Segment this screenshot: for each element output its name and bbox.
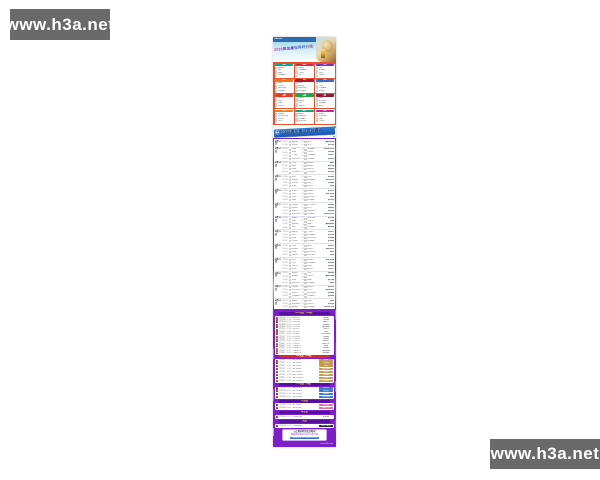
match-time: 09:00 bbox=[282, 199, 288, 201]
away-team-name: 突尼斯 bbox=[307, 259, 313, 261]
home-team: 阿根廷 bbox=[289, 286, 301, 288]
poster-brand-logo: h3a.net bbox=[275, 38, 283, 41]
home-team: 比利时 bbox=[289, 182, 301, 184]
match-time: 02:00 bbox=[282, 245, 288, 247]
away-team: 附加赛1 bbox=[304, 295, 316, 297]
away-team: 乌拉圭 bbox=[304, 275, 316, 277]
away-team-name: 附加赛A bbox=[307, 154, 315, 156]
away-team-name: 佛得角 bbox=[307, 190, 313, 192]
home-team-name: 英格兰 bbox=[292, 217, 298, 219]
home-team-name: 德国 bbox=[292, 251, 296, 253]
team-row: 厄瓜多尔 bbox=[295, 90, 314, 93]
match-pairing: 胜1 vs 胜2 bbox=[292, 404, 318, 406]
match-venue: 温哥华 bbox=[316, 154, 334, 156]
match-row: 09:00加拿大VS瑞士多伦多 bbox=[282, 143, 334, 146]
knockout-zone: 1/16决赛（32强） 16月29日03:00A1 vs C2洛杉矶26月29日… bbox=[273, 310, 336, 447]
away-team: 附加赛D bbox=[304, 306, 316, 308]
match-time: 07:00 bbox=[286, 368, 292, 370]
away-team-name: 附加赛B bbox=[307, 179, 315, 181]
date-label: 6月15日 bbox=[275, 176, 283, 188]
away-team: 附加赛1 bbox=[304, 213, 316, 215]
third-place-table: 17月19日03:00半决赛负者迈阿密 bbox=[275, 415, 334, 420]
away-team-name: 附加赛D bbox=[307, 226, 315, 228]
match-row: 09:00埃及VS新西兰温哥华 bbox=[282, 267, 334, 270]
match-venue: 西雅图 bbox=[319, 374, 333, 376]
section-header-r32: 1/16决赛（32强） bbox=[279, 312, 330, 315]
match-time: 05:00 bbox=[282, 303, 288, 305]
match-time: 07:00 bbox=[282, 237, 288, 239]
schedule-banner-title: 2026美加墨世界杯赛程 bbox=[281, 129, 322, 136]
match-venue: 洛杉矶 bbox=[316, 151, 334, 153]
home-team-name: 巴西 bbox=[292, 245, 296, 247]
match-time: 05:00 bbox=[282, 276, 288, 278]
away-team-name: 苏格兰 bbox=[307, 248, 313, 250]
home-team-name: 荷兰 bbox=[292, 176, 296, 178]
match-time: 07:00 bbox=[282, 279, 288, 281]
match-venue: 纽约 bbox=[316, 282, 334, 284]
matches-column: 06:00墨西哥VS南非墨西哥城09:00加拿大VS瑞士多伦多 bbox=[282, 140, 334, 146]
match-venue: 洛杉矶 bbox=[316, 265, 334, 267]
away-team-name: 克罗地亚 bbox=[307, 217, 315, 219]
home-team: 加纳 bbox=[289, 220, 301, 222]
away-team: 乌兹别克 bbox=[304, 210, 316, 212]
away-team-name: 附加赛A bbox=[307, 234, 315, 236]
section-header-r16: 1/8决赛（16强） bbox=[279, 355, 330, 358]
match-pairing: 半决赛负者 bbox=[292, 416, 318, 418]
section-header-third: 季军赛 bbox=[279, 411, 330, 414]
away-team-name: 日本 bbox=[307, 176, 311, 178]
date-label: 6月19日 bbox=[275, 231, 283, 243]
match-time: 02:00 bbox=[282, 190, 288, 192]
section-header-qf: 1/4决赛（8强） bbox=[279, 383, 330, 386]
match-venue: 多伦多 bbox=[316, 144, 334, 146]
home-team: 阿根廷 bbox=[289, 204, 301, 206]
match-venue: 西雅图 bbox=[316, 292, 334, 294]
home-team-name: 荷兰 bbox=[292, 259, 296, 261]
poster-watermark: www.h3a.net bbox=[320, 443, 333, 446]
team-name: 挪威 bbox=[319, 105, 323, 107]
date-label: 6月21日 bbox=[275, 258, 283, 270]
team-row: 苏格兰 bbox=[316, 74, 335, 77]
match-row: 09:00挪威VS附加赛2多伦多 bbox=[282, 199, 334, 202]
match-venue: 迈阿密 bbox=[319, 416, 333, 418]
date-label: 6月18日 bbox=[275, 217, 283, 229]
team-row: 新西兰 bbox=[275, 105, 294, 108]
match-date: 7月20日 bbox=[279, 425, 286, 427]
away-team: 苏格兰 bbox=[304, 165, 316, 167]
match-time: 05:00 bbox=[282, 289, 288, 291]
away-team-name: 附加赛C bbox=[307, 158, 315, 160]
match-time: 07:00 bbox=[282, 182, 288, 184]
away-team: 巴拿马 bbox=[304, 303, 316, 305]
match-date: 7月11日 bbox=[279, 396, 286, 398]
home-team: 巴拉圭 bbox=[289, 240, 301, 242]
match-venue: 洛杉矶 bbox=[316, 210, 334, 212]
away-team: 附加赛C bbox=[304, 240, 316, 242]
home-team-name: 伊朗 bbox=[292, 185, 296, 187]
match-venue: 亚特兰大 bbox=[316, 248, 334, 250]
away-team-name: 约旦 bbox=[307, 207, 311, 209]
home-team: 葡萄牙 bbox=[289, 210, 301, 212]
home-team-name: 比利时 bbox=[292, 182, 298, 184]
date-label: 6月14日 bbox=[275, 162, 283, 174]
r32-table: 16月29日03:00A1 vs C2洛杉矶26月29日07:00C1 vs F… bbox=[275, 316, 334, 355]
match-time: 07:00 bbox=[282, 210, 288, 212]
home-team-name: 科特迪瓦 bbox=[292, 171, 300, 173]
away-team: 克罗地亚 bbox=[304, 217, 316, 219]
away-team-name: 乌兹别克 bbox=[307, 210, 315, 212]
home-team: 卡塔尔 bbox=[289, 154, 301, 156]
date-label: 6月23日 bbox=[275, 286, 283, 298]
match-pairing: 胜3 vs 胜4 bbox=[292, 407, 318, 409]
home-team: 澳大利亚 bbox=[289, 158, 301, 160]
match-time: 05:00 bbox=[282, 152, 288, 154]
away-team: 摩洛哥 bbox=[304, 162, 316, 164]
away-team-name: 阿尔及利亚 bbox=[307, 204, 316, 206]
match-time: 09:00 bbox=[282, 295, 288, 297]
home-team: 法国 bbox=[289, 279, 301, 281]
matches-column: 02:00西班牙VS沙特休斯敦05:00佛得角VS乌拉圭墨西哥城07:00法国V… bbox=[282, 272, 334, 284]
home-team-name: 瑞士 bbox=[292, 234, 296, 236]
date-group: 6月17日02:00阿根廷VS阿尔及利亚达拉斯05:00奥地利VS约旦休斯敦07… bbox=[275, 203, 334, 217]
match-time: 07:00 bbox=[282, 223, 288, 225]
team-name: 约旦 bbox=[278, 120, 282, 122]
away-team: 附加赛D bbox=[304, 148, 316, 150]
match-time: 02:00 bbox=[282, 286, 288, 288]
home-team-name: 比利时 bbox=[292, 265, 298, 267]
date-group: 6月16日02:00西班牙VS佛得角迈阿密05:00沙特VS乌拉圭堪萨斯城07:… bbox=[275, 189, 334, 203]
match-time: 05:00 bbox=[282, 248, 288, 250]
match-row: 09:00澳大利亚VS附加赛C旧金山 bbox=[282, 157, 334, 160]
match-venue: 旧金山 bbox=[316, 240, 334, 242]
home-team: 荷兰 bbox=[289, 176, 301, 178]
note-line: 更多赛程请访问 www.h3a.net bbox=[290, 437, 319, 439]
team-row: 哥伦比亚 bbox=[295, 120, 314, 123]
home-team: 比利时 bbox=[289, 265, 301, 267]
away-team-name: 附加赛B bbox=[307, 262, 315, 264]
away-team: 哥伦比亚 bbox=[304, 292, 316, 294]
date-label: 6月12日 bbox=[275, 140, 283, 146]
group-card: I组法国塞内加尔附加赛2挪威 bbox=[315, 94, 334, 108]
matches-column: 02:00荷兰VS日本达拉斯05:00突尼斯VS附加赛B亚特兰大07:00比利时… bbox=[282, 176, 334, 188]
home-team: 哥伦比亚 bbox=[289, 213, 301, 215]
match-venue: 费城 bbox=[316, 220, 334, 222]
away-team: 巴拿马 bbox=[304, 220, 316, 222]
away-team: 卡塔尔 bbox=[304, 231, 316, 233]
home-team: 摩洛哥 bbox=[289, 248, 301, 250]
home-team: 墨西哥 bbox=[289, 306, 301, 308]
match-venue: 多伦多 bbox=[316, 234, 334, 236]
team-row: 乌拉圭 bbox=[295, 105, 314, 108]
match-row: 09:00乌兹别克VS附加赛1旧金山 bbox=[282, 295, 334, 298]
match-venue: 达拉斯 bbox=[316, 176, 334, 178]
away-team: 约旦 bbox=[304, 289, 316, 291]
match-date: 7月7日 bbox=[279, 371, 286, 373]
away-team: 奥地利 bbox=[304, 286, 316, 288]
match-time: 05:00 bbox=[282, 220, 288, 222]
match-venue: 多伦多 bbox=[316, 199, 334, 201]
group-card: B组加拿大附加赛A卡塔尔瑞士 bbox=[295, 64, 314, 78]
schedule-banner-ribbon: ⚽ 2026美加墨世界杯赛程 bbox=[274, 126, 335, 137]
match-venue: 达拉斯 bbox=[319, 371, 333, 373]
away-team: 海地 bbox=[304, 245, 316, 247]
home-team-name: 加纳 bbox=[292, 220, 296, 222]
match-time: 03:00 bbox=[286, 365, 292, 367]
team-name: 瑞士 bbox=[298, 74, 302, 76]
away-team-name: 附加赛2 bbox=[307, 282, 314, 284]
group-card: D组美国巴拉圭澳大利亚附加赛C bbox=[275, 79, 294, 93]
home-team-name: 阿根廷 bbox=[292, 204, 298, 206]
team-name: 附加赛C bbox=[278, 90, 286, 92]
away-team: 巴拉圭 bbox=[304, 151, 316, 153]
home-team: 瑞士 bbox=[289, 234, 301, 236]
away-team-name: 巴拿马 bbox=[307, 220, 313, 222]
home-team: 法国 bbox=[289, 196, 301, 198]
match-time: 09:00 bbox=[282, 240, 288, 242]
group-card: C组巴西摩洛哥海地苏格兰 bbox=[315, 64, 334, 78]
section-header-final: 决赛 bbox=[279, 420, 330, 423]
match-time: 03:00 bbox=[286, 371, 292, 373]
match-pairing: 胜G vs 胜H bbox=[292, 396, 318, 398]
match-venue: 温哥华 bbox=[316, 231, 334, 233]
group-card: K组葡萄牙乌兹别克附加赛1哥伦比亚 bbox=[295, 109, 314, 123]
away-team: 加纳 bbox=[304, 300, 316, 302]
match-date: 7月19日 bbox=[279, 416, 286, 418]
team-name: 新西兰 bbox=[278, 105, 284, 107]
away-team: 科特迪瓦 bbox=[304, 251, 316, 253]
match-venue: 达拉斯 bbox=[316, 171, 334, 173]
matches-column: 02:00英格兰VS克罗地亚波士顿05:00加纳VS巴拿马费城07:00墨西哥V… bbox=[282, 217, 334, 229]
match-time: 02:00 bbox=[282, 272, 288, 274]
home-team: 巴西 bbox=[289, 162, 301, 164]
match-time: 07:00 bbox=[282, 265, 288, 267]
home-team-name: 巴拉圭 bbox=[292, 240, 298, 242]
match-venue: 费城 bbox=[316, 254, 334, 256]
date-label: 6月16日 bbox=[275, 189, 283, 201]
home-team-name: 卡塔尔 bbox=[292, 154, 298, 156]
team-name: 附加赛D bbox=[278, 74, 286, 76]
home-team-name: 日本 bbox=[292, 262, 296, 264]
home-team: 葡萄牙 bbox=[289, 292, 301, 294]
match-pairing: 胜7 vs 胜8 bbox=[292, 368, 318, 370]
team-row: 瑞士 bbox=[295, 74, 314, 77]
match-date: 7月6日 bbox=[279, 368, 286, 370]
home-team-name: 法国 bbox=[292, 279, 296, 281]
match-venue: 亚特兰大 bbox=[316, 179, 334, 181]
team-row: 巴拿马 bbox=[316, 120, 335, 123]
home-team: 阿尔及利亚 bbox=[289, 289, 301, 291]
match-pairing: 胜9 vs 胜10 bbox=[292, 371, 318, 373]
match-venue: 瓜达拉哈拉 bbox=[316, 306, 334, 308]
away-team: 附加赛A bbox=[304, 234, 316, 236]
match-pairing: 胜11 vs 胜12 bbox=[292, 374, 318, 376]
home-team: 巴西 bbox=[289, 245, 301, 247]
match-row: 09:00南非VS附加赛D蒙特雷 bbox=[282, 226, 334, 229]
match-time: 05:00 bbox=[282, 165, 288, 167]
away-team: 附加赛B bbox=[304, 179, 316, 181]
match-time: 03:00 bbox=[286, 359, 292, 361]
match-venue: 达拉斯 bbox=[316, 262, 334, 264]
home-team-name: 葡萄牙 bbox=[292, 292, 298, 294]
match-row: 09:00塞内加尔VS附加赛2纽约 bbox=[282, 281, 334, 284]
match-venue: 迈阿密 bbox=[319, 380, 333, 382]
matches-column: 02:00巴西VS摩洛哥纽约05:00海地VS苏格兰波士顿07:00德国VS库拉… bbox=[282, 162, 334, 174]
date-group: 6月22日02:00西班牙VS沙特休斯敦05:00佛得角VS乌拉圭墨西哥城07:… bbox=[275, 272, 334, 286]
home-team: 荷兰 bbox=[289, 259, 301, 261]
group-stage-table-border: 6月12日06:00墨西哥VS南非墨西哥城09:00加拿大VS瑞士多伦多6月13… bbox=[273, 138, 336, 310]
away-team-name: 附加赛D bbox=[307, 306, 315, 308]
match-date: 7月8日 bbox=[279, 377, 286, 379]
home-team: 突尼斯 bbox=[289, 179, 301, 181]
knockout-row: 17月19日03:00半决赛负者迈阿密 bbox=[276, 415, 333, 419]
team-row: 约旦 bbox=[275, 120, 294, 123]
matches-column: 02:00荷兰VS突尼斯堪萨斯城05:00日本VS附加赛B达拉斯07:00比利时… bbox=[282, 258, 334, 270]
home-team: 德国 bbox=[289, 251, 301, 253]
away-team: 埃及 bbox=[304, 182, 316, 184]
match-time: 05:00 bbox=[282, 262, 288, 264]
match-time: 02:00 bbox=[282, 162, 288, 164]
match-venue: 瓜达拉哈拉 bbox=[316, 213, 334, 215]
home-team: 日本 bbox=[289, 262, 301, 264]
away-team: 澳大利亚 bbox=[304, 237, 316, 239]
match-pairing: 半决赛胜者 bbox=[292, 425, 318, 427]
date-label: 6月22日 bbox=[275, 272, 283, 284]
match-time: 07:00 bbox=[286, 380, 292, 382]
group-card: F组荷兰日本附加赛B突尼斯 bbox=[315, 79, 334, 93]
home-team-name: 巴西 bbox=[292, 162, 296, 164]
away-team-name: 澳大利亚 bbox=[307, 237, 315, 239]
home-team: 埃及 bbox=[289, 268, 301, 270]
final-table: 17月20日03:00半决赛胜者纽约大都会 bbox=[275, 424, 334, 429]
home-team: 佛得角 bbox=[289, 275, 301, 277]
home-team: 加拿大 bbox=[289, 144, 301, 146]
team-name: 乌拉圭 bbox=[298, 105, 304, 107]
match-venue: 迈阿密 bbox=[316, 245, 334, 247]
match-venue: 堪萨斯城 bbox=[319, 396, 333, 398]
match-time: 07:00 bbox=[282, 306, 288, 308]
match-venue: 迈阿密 bbox=[319, 393, 333, 395]
away-team-name: 沙特 bbox=[307, 272, 311, 274]
match-time: 05:00 bbox=[282, 179, 288, 181]
away-team: 塞内加尔 bbox=[304, 196, 316, 198]
match-row: 09:00巴拉圭VS附加赛C旧金山 bbox=[282, 240, 334, 243]
home-team: 海地 bbox=[289, 165, 301, 167]
group-card: L组英格兰克罗地亚加纳巴拿马 bbox=[315, 109, 334, 123]
match-row: 09:00伊朗VS新西兰费城 bbox=[282, 185, 334, 188]
match-time: 07:00 bbox=[282, 168, 288, 170]
home-team-name: 挪威 bbox=[292, 199, 296, 201]
match-venue: 洛杉矶 bbox=[319, 390, 333, 392]
away-team: 厄瓜多尔 bbox=[304, 171, 316, 173]
match-time: 05:00 bbox=[282, 207, 288, 209]
home-team: 克罗地亚 bbox=[289, 303, 301, 305]
match-time: 09:00 bbox=[282, 227, 288, 229]
match-time: 09:00 bbox=[282, 282, 288, 284]
note-line: 赛程如有变动以官方公布为准 bbox=[291, 434, 318, 436]
schedule-banner: ⚽ 2026美加墨世界杯赛程 bbox=[273, 125, 336, 138]
match-time: 09:00 bbox=[282, 158, 288, 160]
home-team-name: 阿尔及利亚 bbox=[292, 289, 301, 291]
away-team: 附加赛2 bbox=[304, 282, 316, 284]
home-team-name: 墨西哥 bbox=[292, 141, 298, 143]
away-team-name: 加纳 bbox=[307, 300, 311, 302]
home-team: 美国 bbox=[289, 151, 301, 153]
away-team-name: 塞内加尔 bbox=[307, 196, 315, 198]
knockout-row: 47月11日08:00胜G vs 胜H堪萨斯城 bbox=[276, 395, 333, 398]
away-team-name: 乌拉圭 bbox=[307, 275, 313, 277]
home-team: 挪威 bbox=[289, 199, 301, 201]
match-venue: 纽约 bbox=[316, 196, 334, 198]
away-team-name: 挪威 bbox=[307, 279, 311, 281]
date-label: 6月13日 bbox=[275, 148, 283, 160]
match-venue: 达拉斯 bbox=[319, 404, 333, 406]
home-team-name: 墨西哥 bbox=[292, 223, 298, 225]
home-team: 科特迪瓦 bbox=[289, 171, 301, 173]
match-venue: 纽约大都会 bbox=[319, 425, 333, 427]
match-venue: 达拉斯 bbox=[316, 204, 334, 206]
page: www.h3a.net www.h3a.net h3a.net 2026美加墨世… bbox=[0, 0, 600, 480]
away-team: 附加赛A bbox=[304, 154, 316, 156]
away-team-name: 附加赛1 bbox=[307, 213, 314, 215]
match-time: 03:00 bbox=[286, 416, 292, 418]
home-team: 英格兰 bbox=[289, 300, 301, 302]
team-name: 巴拿马 bbox=[319, 120, 325, 122]
away-team: 伊朗 bbox=[304, 265, 316, 267]
date-group: 6月19日02:00加拿大VS卡塔尔温哥华05:00瑞士VS附加赛A多伦多07:… bbox=[275, 230, 334, 244]
matches-column: 02:00阿根廷VS阿尔及利亚达拉斯05:00奥地利VS约旦休斯敦07:00葡萄… bbox=[282, 203, 334, 215]
date-group: 6月20日02:00巴西VS海地迈阿密05:00摩洛哥VS苏格兰亚特兰大07:0… bbox=[275, 244, 334, 258]
home-team: 西班牙 bbox=[289, 190, 301, 192]
matches-column: 02:00英格兰VS加纳纽约05:00克罗地亚VS巴拿马多伦多07:00墨西哥V… bbox=[282, 300, 334, 309]
group-card: G组比利时埃及伊朗新西兰 bbox=[275, 94, 294, 108]
group-stage-table: 6月12日06:00墨西哥VS南非墨西哥城09:00加拿大VS瑞士多伦多6月13… bbox=[274, 139, 334, 308]
match-venue: 费城 bbox=[316, 185, 334, 187]
home-team-name: 哥伦比亚 bbox=[292, 213, 300, 215]
match-date: 7月15日 bbox=[279, 404, 286, 406]
away-team-name: 伊朗 bbox=[307, 265, 311, 267]
match-pairing: 胜13 vs 胜14 bbox=[292, 377, 318, 379]
match-time: 02:00 bbox=[282, 217, 288, 219]
world-cup-schedule-poster: h3a.net 2026美加墨世界杯分组 A组墨西哥南非韩国附加赛DB组加拿大附… bbox=[273, 37, 336, 447]
date-group: 6月13日02:00韩国VS附加赛D瓜达拉哈拉05:00美国VS巴拉圭洛杉矶07… bbox=[275, 148, 334, 162]
team-row: 附加赛D bbox=[275, 74, 294, 77]
away-team: 乌拉圭 bbox=[304, 193, 316, 195]
match-venue: 旧金山 bbox=[316, 158, 334, 160]
match-time: 02:00 bbox=[282, 176, 288, 178]
match-venue: 休斯敦 bbox=[316, 207, 334, 209]
team-name: 哥伦比亚 bbox=[298, 120, 306, 122]
away-team: 苏格兰 bbox=[304, 248, 316, 250]
home-team: 墨西哥 bbox=[289, 223, 301, 225]
away-team-name: 哥伦比亚 bbox=[307, 292, 315, 294]
date-group: 6月23日02:00阿根廷VS奥地利迈阿密05:00阿尔及利亚VS约旦亚特兰大0… bbox=[275, 286, 334, 300]
match-time: 07:00 bbox=[282, 251, 288, 253]
watermark-top-left: www.h3a.net bbox=[10, 9, 110, 40]
date-group: 6月14日02:00巴西VS摩洛哥纽约05:00海地VS苏格兰波士顿07:00德… bbox=[275, 162, 334, 176]
away-team: 瑞士 bbox=[304, 144, 316, 146]
away-team: 附加赛B bbox=[304, 262, 316, 264]
home-team: 沙特 bbox=[289, 193, 301, 195]
match-time: 02:00 bbox=[282, 204, 288, 206]
group-card: E组德国库拉索科特迪瓦厄瓜多尔 bbox=[295, 79, 314, 93]
home-team-name: 德国 bbox=[292, 168, 296, 170]
match-venue: 休斯敦 bbox=[319, 362, 333, 364]
home-team-name: 摩洛哥 bbox=[292, 248, 298, 250]
match-venue: 亚特兰大 bbox=[316, 289, 334, 291]
match-venue: 墨西哥城 bbox=[316, 223, 334, 225]
match-date: 7月8日 bbox=[279, 380, 286, 382]
match-venue: 堪萨斯城 bbox=[316, 259, 334, 261]
